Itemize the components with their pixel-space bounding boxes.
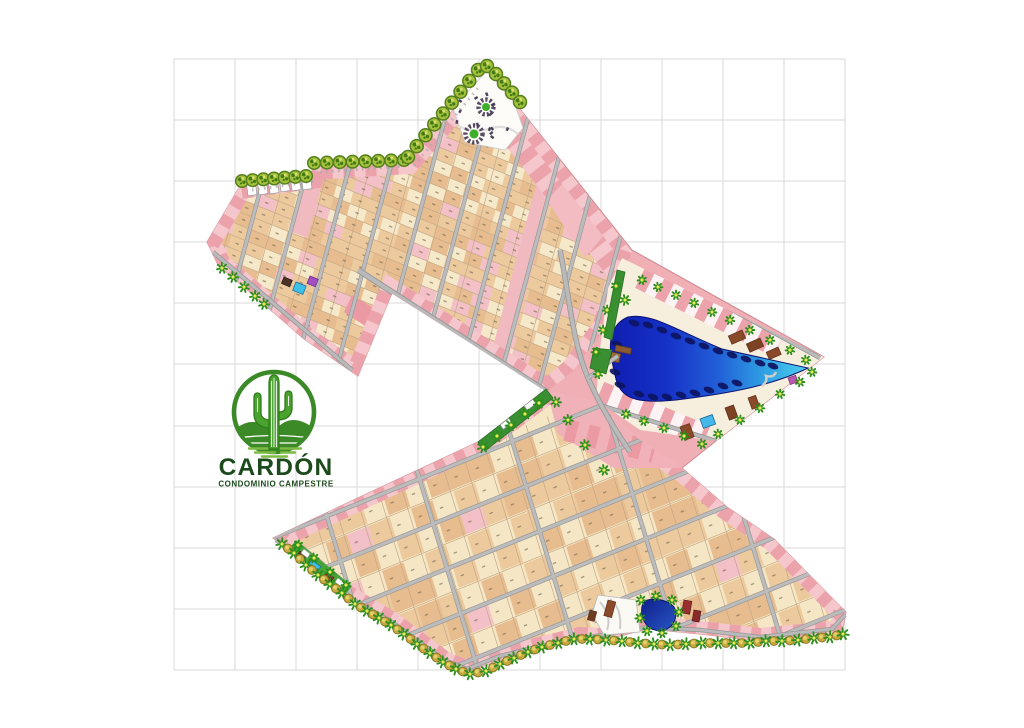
svg-text:CONDOMINIO CAMPESTRE: CONDOMINIO CAMPESTRE [218, 480, 334, 489]
svg-text:CARDÓN: CARDÓN [219, 453, 334, 481]
